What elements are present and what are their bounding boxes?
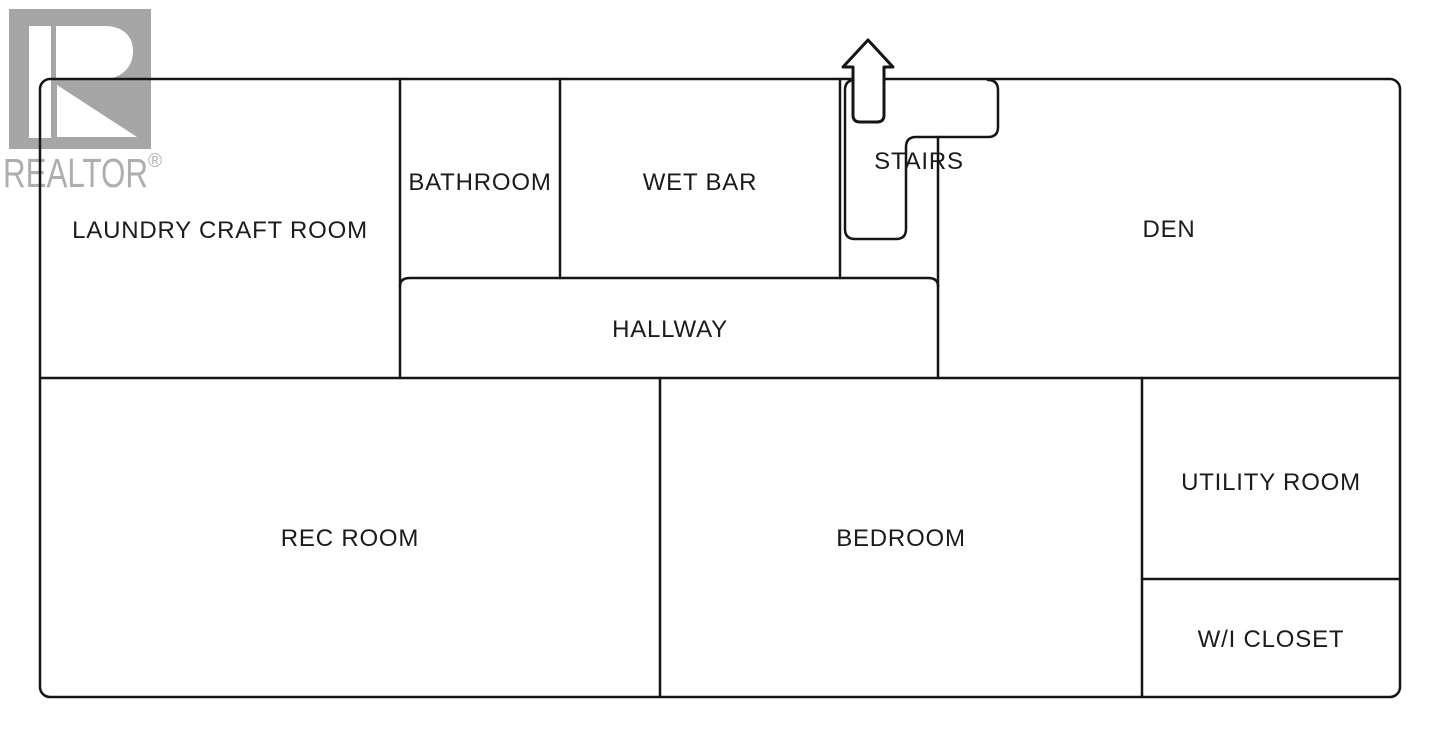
- wall-hallway-top: [400, 278, 938, 286]
- floor-plan-page: REALTOR ® LAUNDRY CRAFT ROOM BATHROOM WE…: [0, 0, 1440, 740]
- room-label-rec-room: REC ROOM: [281, 525, 419, 552]
- room-label-utility-room: UTILITY ROOM: [1181, 469, 1361, 496]
- realtor-logo-text: REALTOR: [3, 150, 148, 196]
- room-label-wet-bar: WET BAR: [643, 169, 758, 196]
- registered-trademark-symbol: ®: [148, 151, 162, 172]
- room-label-laundry-craft-room: LAUNDRY CRAFT ROOM: [72, 217, 368, 244]
- room-labels: LAUNDRY CRAFT ROOM BATHROOM WET BAR STAI…: [72, 148, 1361, 653]
- room-label-bathroom: BATHROOM: [408, 169, 551, 196]
- room-label-wi-closet: W/I CLOSET: [1198, 626, 1345, 653]
- room-label-hallway: HALLWAY: [612, 316, 728, 343]
- floor-plan-canvas: REALTOR ® LAUNDRY CRAFT ROOM BATHROOM WE…: [0, 0, 1440, 740]
- room-label-stairs: STAIRS: [874, 148, 964, 175]
- realtor-logo: REALTOR ®: [3, 9, 162, 196]
- realtor-r-bowl: [56, 26, 133, 80]
- room-label-bedroom: BEDROOM: [836, 525, 966, 552]
- room-label-den: DEN: [1142, 216, 1195, 243]
